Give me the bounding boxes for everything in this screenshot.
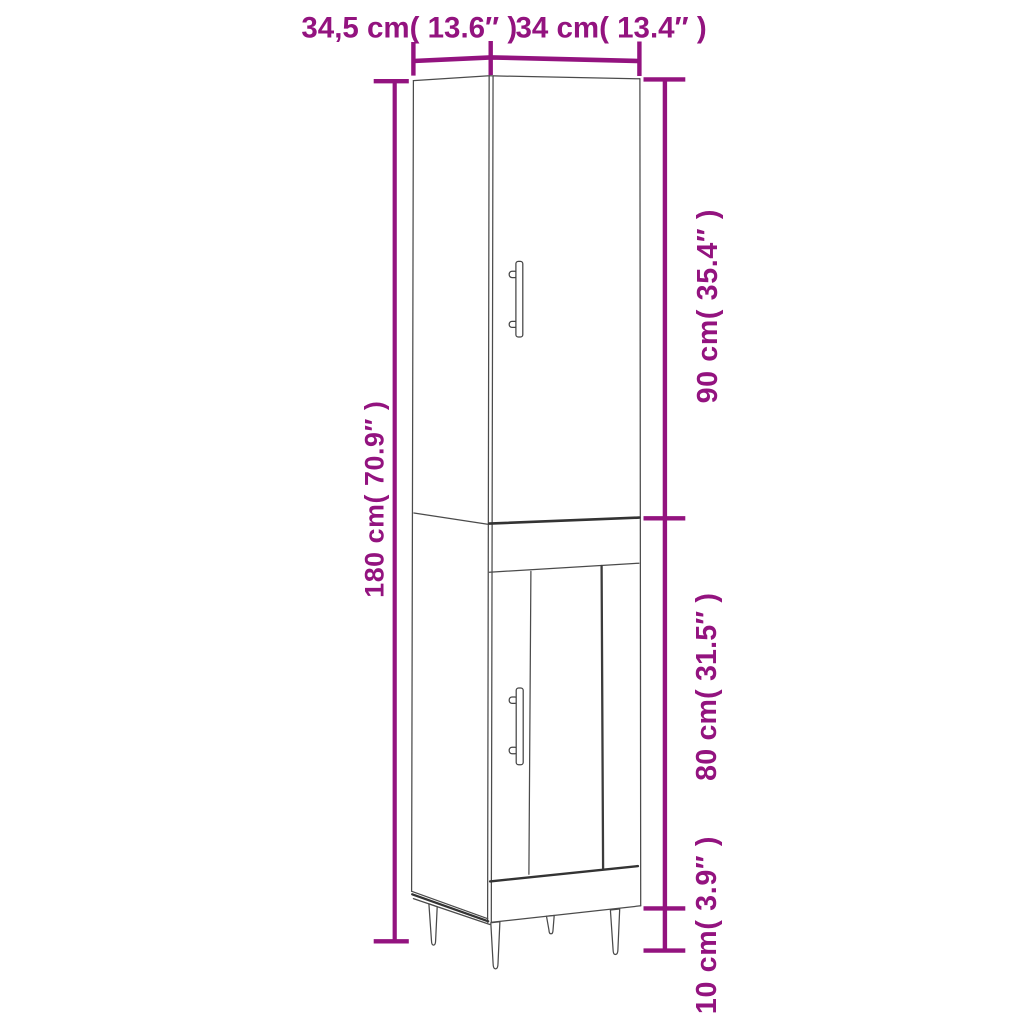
svg-text:34 cm( 13.4″ ): 34 cm( 13.4″ ) bbox=[515, 12, 706, 45]
svg-text:80 cm( 31.5″ ): 80 cm( 31.5″ ) bbox=[691, 593, 723, 781]
svg-text:90 cm( 35.4″ ): 90 cm( 35.4″ ) bbox=[692, 209, 724, 403]
svg-text:180 cm( 70.9″ ): 180 cm( 70.9″ ) bbox=[360, 401, 390, 598]
svg-text:10 cm( 3.9″ ): 10 cm( 3.9″ ) bbox=[691, 836, 723, 1014]
svg-text:34,5 cm( 13.6″ ): 34,5 cm( 13.6″ ) bbox=[301, 12, 517, 45]
